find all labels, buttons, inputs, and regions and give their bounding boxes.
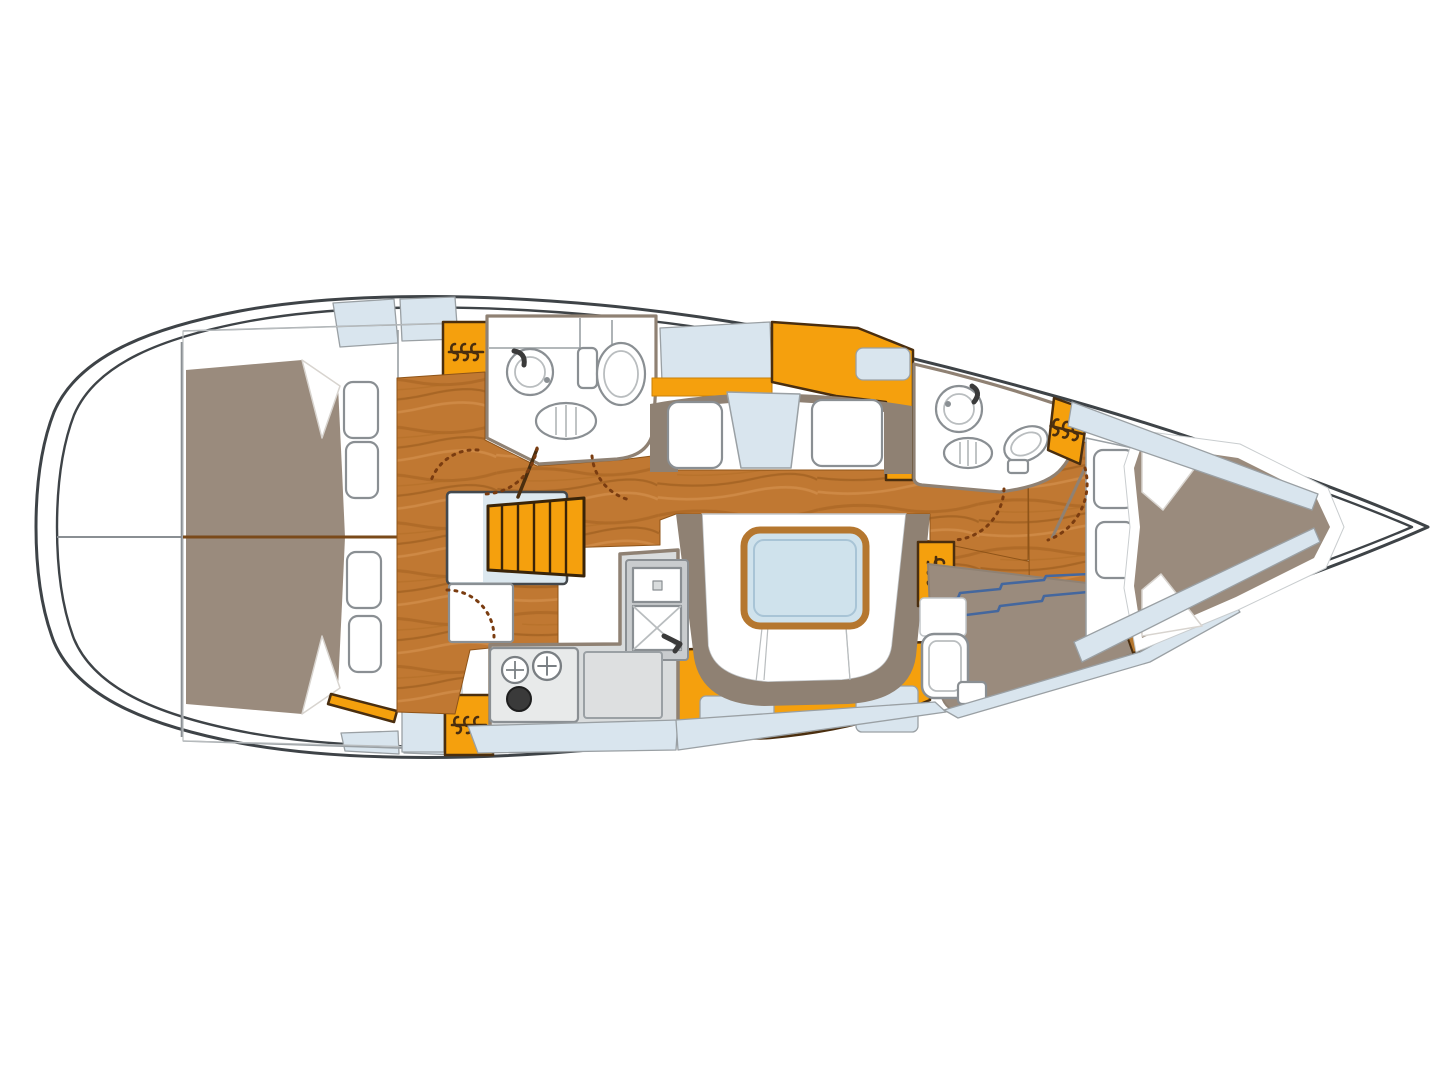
toilet-tank [1008,460,1028,473]
toilet-tank [578,348,597,388]
galley-worktop [584,652,662,718]
drainer-dot [653,581,662,590]
saloon-table [744,530,866,626]
stove-burner-icon [533,652,561,680]
yacht-floor-plan-page [0,0,1440,1080]
settee-cushion [812,400,882,466]
galley-floor-strip [468,720,678,753]
locker-hatch [344,382,378,438]
saloon-settee-straight [650,322,913,480]
drain-dot [945,401,951,407]
drain-dot [544,377,550,383]
deck-panel [341,731,399,754]
sideboard-top-panel [856,348,910,380]
deck-panel [333,299,398,347]
settee-cushion [668,402,722,468]
landing-white-panel [449,494,483,582]
locker-hatch [347,552,381,608]
locker-hatch [349,616,381,672]
stove-pot-icon [507,687,531,711]
washbasin [507,349,553,395]
sideboard-panel [660,322,772,382]
companionway-step-box [449,584,513,642]
yacht-floor-plan [0,0,1440,1080]
seat-back-panel [920,598,966,636]
stove-burner-icon [502,657,528,683]
locker-hatch [346,442,378,498]
